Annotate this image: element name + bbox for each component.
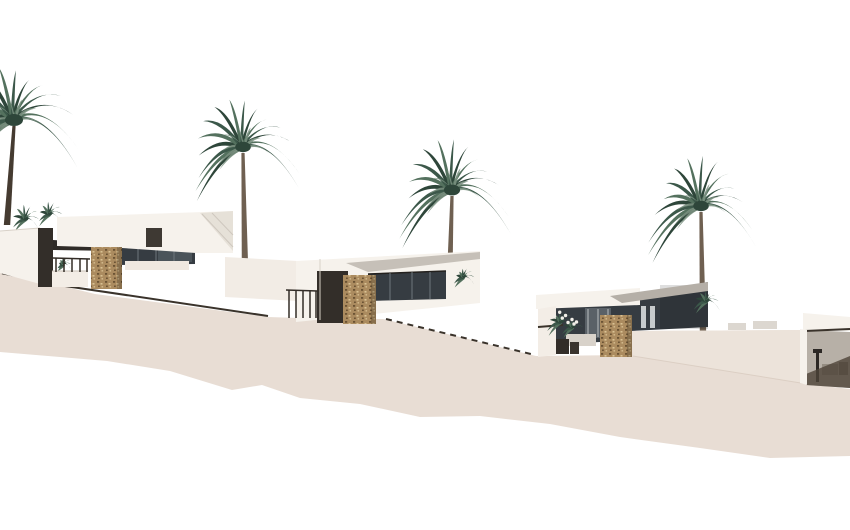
flower-bloom [566, 321, 569, 324]
palm-frond [652, 206, 702, 263]
flower-bloom [570, 318, 573, 321]
palm-frond [707, 299, 720, 311]
villa-4-roof-band [803, 313, 850, 331]
render-canvas [0, 0, 850, 530]
palm-trunk [4, 126, 16, 225]
palm-trunk [241, 153, 248, 268]
villa-2 [286, 251, 480, 324]
flower-bloom [564, 314, 567, 317]
villa-3-door-strip [650, 306, 655, 328]
flower-bloom [553, 314, 556, 317]
villa-2-pillar-shade [371, 275, 376, 324]
villa-4-distant-roof [753, 321, 777, 329]
villa-1-ledge [125, 261, 189, 270]
palm-frond [197, 147, 245, 201]
palm-frond [14, 116, 77, 167]
palm-crown-center [444, 185, 460, 196]
palm-tree-1 [0, 68, 79, 225]
palm-frond [402, 190, 453, 248]
shrub-left-terrace-a [13, 205, 39, 232]
flower-bloom [572, 322, 575, 325]
villa-4-distant-roof [728, 323, 746, 330]
villa-4-lamp-head [813, 349, 822, 353]
villa-1-planter [52, 271, 88, 287]
villa-1-pillar-shade [117, 247, 122, 289]
villa-3-door-strip [641, 306, 646, 328]
villa-3-plant-pot [556, 339, 569, 354]
flower-bloom [561, 316, 564, 319]
architectural-render [0, 0, 850, 530]
villa-3-pillar-shade [627, 315, 632, 357]
villa-1-dark-panel [38, 228, 53, 287]
palm-frond [701, 203, 756, 247]
palm-frond [64, 262, 71, 269]
palm-crown-center [559, 321, 563, 324]
palm-frond [452, 187, 511, 234]
palm-crown-center [235, 142, 251, 152]
villa-1 [0, 211, 233, 289]
villa-2-glass-facade [368, 271, 446, 301]
villa-4-corner-wall [800, 329, 807, 385]
palm-frond [243, 144, 299, 189]
palm-crown-center [572, 326, 575, 328]
villa-3-plant-pot [570, 342, 579, 354]
palm-crown-center [48, 213, 52, 216]
palm-crown-center [24, 218, 29, 221]
flower-bloom [558, 311, 561, 314]
back-wall [225, 257, 298, 301]
palm-crown-center [5, 114, 23, 126]
villa-1-chimney [146, 228, 162, 247]
palm-crown-center [463, 276, 466, 278]
villa-3-side-wall [538, 306, 556, 357]
palm-crown-center [693, 201, 709, 211]
palm-crown-center [705, 300, 709, 302]
background-shrubs-layer [13, 202, 62, 232]
